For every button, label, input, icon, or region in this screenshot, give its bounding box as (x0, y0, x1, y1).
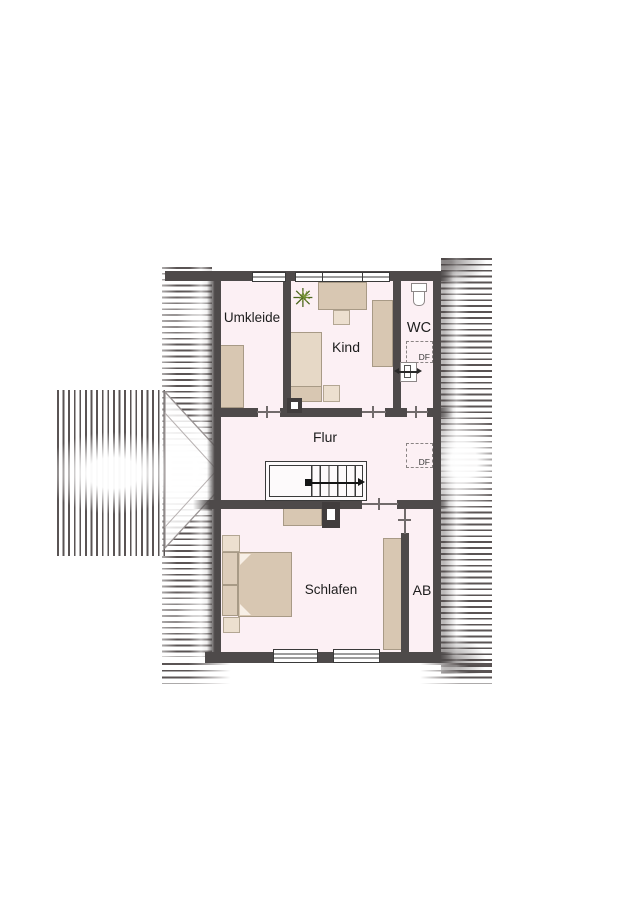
chimney (287, 398, 302, 413)
room-label-schlafen: Schlafen (296, 582, 366, 597)
wall-kind-wc (393, 278, 401, 417)
fixture-arrow-line (397, 371, 419, 373)
pillow (222, 552, 238, 585)
door-opening (362, 503, 398, 505)
roof-hatch-right (441, 258, 492, 674)
stair-direction-line (308, 482, 360, 484)
wardrobe (219, 345, 244, 408)
child-bed (288, 332, 322, 389)
chair (333, 310, 350, 325)
room-label-wc: WC (398, 320, 440, 336)
skylight-df-flur: DF (406, 443, 433, 468)
toilet-bowl (413, 291, 425, 306)
window (322, 272, 363, 282)
window (273, 649, 318, 663)
wall-bottom (205, 652, 437, 663)
wall-flur-schlafen-seg (397, 500, 433, 509)
room-label-umkleide: Umkleide (209, 310, 295, 325)
door-tick (415, 406, 417, 418)
fixture-arrow-left-icon (394, 368, 399, 374)
wall-umkleide-kind (283, 278, 291, 417)
blanket-fold (240, 554, 251, 565)
skylight-df-wc: DF (406, 341, 433, 363)
wall-mid-seg (214, 408, 258, 417)
wall-left (207, 271, 221, 652)
staircase-treads (311, 465, 363, 497)
nightstand (222, 535, 240, 552)
window (295, 272, 323, 282)
pillow (222, 585, 238, 616)
wardrobe (372, 300, 393, 367)
room-label-ab: AB (404, 582, 440, 598)
desk (318, 282, 367, 310)
skylight-label: DF (419, 352, 430, 362)
nightstand (223, 617, 240, 633)
side-table (323, 385, 340, 402)
wall-low-left-stub (193, 500, 214, 509)
door-opening (404, 509, 406, 534)
chimney-flue (327, 509, 335, 520)
wall-mid-seg (385, 408, 407, 417)
window (333, 649, 380, 663)
roof-hatch-bottom-left (162, 663, 238, 684)
door-opening (362, 411, 386, 413)
stair-direction-start (305, 479, 312, 486)
door-tick (372, 406, 374, 418)
wardrobe (383, 538, 403, 650)
door-tick (398, 519, 411, 521)
wall-low-stub (433, 500, 449, 509)
fixture-arrow-right-icon (417, 368, 422, 374)
wall-mid-stub (433, 408, 453, 417)
stair-arrow-icon (358, 478, 365, 486)
room-label-kind: Kind (320, 339, 372, 355)
skylight-label: DF (419, 457, 430, 467)
door-opening (257, 411, 281, 413)
window (362, 272, 390, 282)
door-tick (378, 498, 380, 510)
roof-hatch-bottom-right (414, 663, 492, 684)
door-tick (266, 406, 268, 418)
dormer-roof-hatch (57, 390, 165, 556)
room-label-flur: Flur (294, 429, 356, 445)
window (252, 272, 286, 282)
door-opening (407, 411, 428, 413)
blanket-fold (240, 604, 251, 615)
dresser (283, 508, 322, 526)
plant-icon: ✳ ✳ (292, 285, 320, 313)
floor-plan: ✳ ✳ (0, 0, 636, 900)
